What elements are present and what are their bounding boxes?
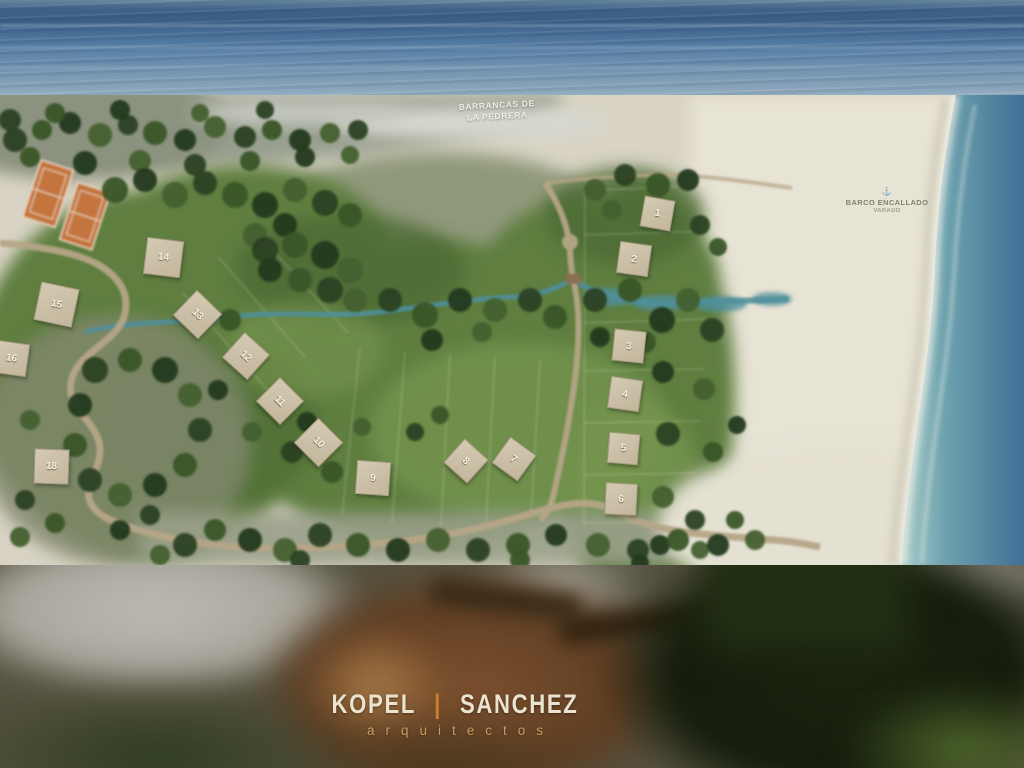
lot-marker: 2	[616, 241, 652, 277]
shipwreck-marker-icon: ⚓	[826, 187, 948, 197]
bottom-photo: KOPEL | SANCHEZ arquitectos	[0, 565, 1024, 768]
lot-marker: 5	[606, 431, 640, 465]
photo-green-right-blur	[840, 683, 1024, 768]
lot-marker: 11	[256, 377, 304, 425]
lots-layer: 1234567891011121314151618	[0, 95, 1024, 565]
firm-name: KOPEL | SANCHEZ	[332, 689, 579, 720]
firm-name-kopel: KOPEL	[332, 689, 416, 720]
render-board: BARRANCAS DE LA PEDRERA ⚓ BARCO ENCALLAD…	[0, 0, 1024, 768]
lot-number: 16	[5, 352, 18, 364]
lot-number: 18	[45, 460, 57, 471]
shipwreck-label: ⚓ BARCO ENCALLADO VARADO	[826, 187, 948, 216]
lot-marker: 1	[639, 195, 675, 231]
lot-marker: 18	[33, 448, 69, 484]
lot-number: 5	[620, 442, 627, 453]
top-ocean-photo	[0, 0, 1024, 95]
lot-number: 1	[653, 207, 660, 219]
photo-trees-dark-blur	[700, 565, 910, 650]
logo-separator-bar: |	[434, 689, 442, 720]
lot-marker: 9	[355, 460, 391, 496]
siteplan-map: BARRANCAS DE LA PEDRERA ⚓ BARCO ENCALLAD…	[0, 95, 1024, 565]
lot-marker: 12	[222, 332, 270, 380]
lot-number: 9	[370, 472, 376, 483]
lot-marker: 3	[611, 328, 646, 363]
lot-marker: 16	[0, 339, 30, 376]
lot-marker: 13	[172, 289, 221, 338]
lot-number: 4	[621, 388, 628, 400]
lot-marker: 6	[604, 482, 638, 516]
lot-marker: 15	[33, 281, 79, 327]
lot-number: 11	[272, 393, 287, 408]
firm-subtitle: arquitectos	[304, 723, 605, 738]
lot-number: 15	[49, 297, 62, 310]
lot-marker: 4	[607, 376, 643, 412]
lot-number: 13	[189, 306, 205, 322]
lot-marker: 14	[142, 236, 183, 277]
lot-number: 14	[157, 251, 169, 263]
lot-number: 8	[460, 455, 471, 467]
lot-number: 7	[509, 453, 520, 465]
lot-number: 12	[238, 348, 254, 364]
lot-marker: 8	[443, 438, 488, 483]
firm-name-sanchez: SANCHEZ	[460, 689, 579, 720]
shipwreck-label-line1: BARCO ENCALLADO	[826, 198, 948, 208]
lot-number: 10	[310, 434, 326, 450]
shipwreck-label-line2: VARADO	[826, 208, 948, 216]
lot-number: 3	[626, 340, 633, 352]
lot-marker: 7	[492, 437, 537, 482]
lot-marker: 10	[293, 417, 342, 466]
lot-number: 2	[630, 253, 637, 265]
firm-logo: KOPEL | SANCHEZ arquitectos	[304, 689, 605, 738]
lot-number: 6	[618, 493, 624, 504]
